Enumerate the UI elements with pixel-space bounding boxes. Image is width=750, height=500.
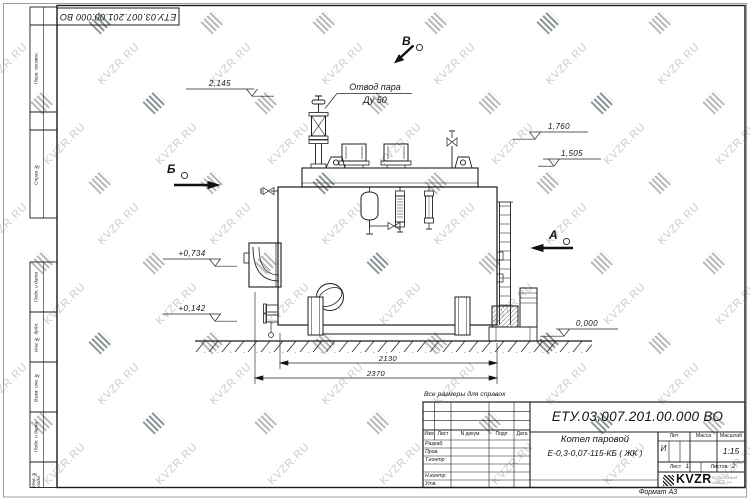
view-label-a-mark (563, 238, 570, 245)
watermark-logo-icon (648, 170, 672, 194)
watermark-text: KVZR.RU (0, 201, 30, 248)
watermark-text: KVZR.RU (432, 201, 479, 248)
dim-2130: 2130 (358, 354, 418, 363)
callout-steam-outlet: Отвод пара (338, 82, 412, 92)
watermark-text: KVZR.RU (0, 361, 30, 408)
watermark-logo-icon (424, 330, 448, 354)
watermark-text: KVZR.RU (432, 41, 479, 88)
sheets-total: 2 (732, 463, 736, 470)
frame-label-podp-data-1: Подп. и дата (31, 262, 43, 312)
kvzr-logo-icon (663, 475, 674, 486)
watermark-text: KVZR.RU (320, 361, 367, 408)
watermark-logo-icon (648, 10, 672, 34)
reference-note: Все размеры для справок (424, 391, 544, 398)
level-0000: 0,000 (556, 319, 618, 328)
watermark-logo-icon (200, 10, 224, 34)
watermark-text: KVZR.RU (154, 121, 201, 168)
watermark-text: KVZR.RU (714, 281, 750, 328)
level-1760: 1,760 (530, 122, 588, 131)
format-label: Формат А3 (618, 489, 698, 496)
top-designation: ЕТУ.03.007.201.00.000 ВО (57, 8, 179, 25)
watermark-text: KVZR.RU (42, 281, 89, 328)
product-name-line2: Е-0,3-0,07-115-КБ ( ЖК ) (532, 448, 658, 458)
watermark-logo-icon (536, 10, 560, 34)
watermark-text: KVZR.RU (208, 201, 255, 248)
frame-label-vzam-inv: Взам. инв. № (31, 362, 43, 412)
watermark-text: KVZR.RU (378, 281, 425, 328)
watermark-text: KVZR.RU (378, 441, 425, 488)
level-2145: 2,145 (186, 79, 254, 88)
watermark-text: KVZR.RU (544, 41, 591, 88)
watermark-logo-icon (702, 90, 726, 114)
watermark-logo-icon (312, 330, 336, 354)
role-utv: Утв. (425, 481, 451, 487)
watermark-text: KVZR.RU (432, 361, 479, 408)
watermark-text: KVZR.RU (378, 121, 425, 168)
frame-label-inv-podl: Инв. № подл. (31, 462, 43, 487)
watermark-logo-icon (536, 170, 560, 194)
col-ndokum: N докум (451, 431, 489, 437)
watermark-text: KVZR.RU (208, 361, 255, 408)
watermark-logo-icon (142, 410, 166, 434)
callout-du50: Ду 50 (338, 95, 412, 105)
watermark-text: KVZR.RU (0, 41, 30, 88)
view-label-b-mark (181, 172, 188, 179)
scale-label: Масштаб (717, 433, 745, 439)
product-name-line1: Котел паровой (532, 434, 658, 445)
sheets-label: Листов (711, 464, 728, 470)
watermark-logo-icon (88, 330, 112, 354)
watermark-text: KVZR.RU (656, 361, 703, 408)
col-izm: Изм (423, 431, 435, 437)
level-0142: +0,142 (163, 304, 221, 313)
watermark-logo-icon (312, 10, 336, 34)
view-label-v-mark (416, 44, 423, 51)
lit-label: Лит (658, 433, 690, 439)
watermark-text: KVZR.RU (544, 361, 591, 408)
watermark-text: KVZR.RU (714, 121, 750, 168)
sheets-cell: Листов 2 (701, 463, 745, 470)
mass-label: Масса (690, 433, 717, 439)
title-block-designation: ЕТУ.03.007.201.00.000 ВО (532, 402, 743, 432)
kvzr-logo-text: KVZR (676, 472, 712, 486)
frame-label-inv-dubl: Инв. № дубл. (31, 312, 43, 362)
watermark-logo-icon (366, 410, 390, 434)
view-label-b: Б (167, 162, 176, 176)
watermark-logo-icon (254, 250, 278, 274)
frame-label-podp-data-2: Подп. и дата (31, 412, 43, 462)
watermark-text: KVZR.RU (96, 361, 143, 408)
watermark-logo-icon (424, 170, 448, 194)
watermark-logo-icon (648, 330, 672, 354)
watermark-logo-icon (478, 250, 502, 274)
watermark-text: KVZR.RU (42, 121, 89, 168)
watermark-logo-icon (366, 250, 390, 274)
dim-2370: 2370 (346, 369, 406, 378)
role-razrab: Разраб. (425, 441, 451, 447)
watermark-text: KVZR.RU (154, 441, 201, 488)
sheet-number: 1 (685, 463, 689, 470)
frame-label-sprav-no: Справ. № (31, 130, 43, 218)
watermark-text: KVZR.RU (320, 201, 367, 248)
watermark-logo-icon (590, 90, 614, 114)
level-1505: 1,505 (543, 149, 601, 158)
view-label-a: А (549, 228, 558, 242)
watermark-text: KVZR.RU (602, 121, 649, 168)
frame-label-perv-primen: Перв. примен. (31, 25, 43, 112)
view-label-v: В (402, 34, 411, 48)
watermark-text: KVZR.RU (490, 441, 537, 488)
role-tkontr: Т.контр (425, 457, 451, 463)
watermark-logo-icon (702, 250, 726, 274)
kvzr-logo-caption: КОТЕЛЬНЫЙ ЗАВОД.РУ (712, 475, 745, 485)
watermark-text: KVZR.RU (656, 41, 703, 88)
col-data: Дата (514, 431, 530, 437)
watermark-logo-icon (88, 170, 112, 194)
drawing-sheet: KVZR.RUKVZR.RUKVZR.RUKVZR.RUKVZR.RUKVZR.… (0, 0, 750, 500)
watermark-logo-icon (254, 410, 278, 434)
col-podp: Подп (489, 431, 514, 437)
role-nkontr: Н.контр (425, 473, 451, 479)
watermark-logo-icon (254, 90, 278, 114)
watermark-logo-icon (478, 90, 502, 114)
watermark-logo-icon (200, 170, 224, 194)
watermark-logo-icon (142, 90, 166, 114)
lit-value: И (658, 444, 669, 453)
sheet-cell: Лист 1 (658, 463, 701, 470)
watermark-logo-icon (590, 250, 614, 274)
watermark-logo-icon (424, 10, 448, 34)
watermark-text: KVZR.RU (266, 281, 313, 328)
watermark-text: KVZR.RU (96, 201, 143, 248)
watermark-text: KVZR.RU (490, 281, 537, 328)
col-list: Лист (435, 431, 451, 437)
scale-value: 1:15 (717, 446, 745, 456)
watermark-text: KVZR.RU (320, 41, 367, 88)
watermark-text: KVZR.RU (656, 201, 703, 248)
watermark-text: KVZR.RU (96, 41, 143, 88)
watermark-logo-icon (536, 330, 560, 354)
watermark-text: KVZR.RU (266, 441, 313, 488)
role-prov: Пров. (425, 449, 451, 455)
watermark-logo-icon (312, 170, 336, 194)
watermark-logo-icon (200, 330, 224, 354)
watermark-text: KVZR.RU (266, 121, 313, 168)
sheet-label: Лист (670, 464, 681, 470)
level-0734: +0,734 (163, 249, 221, 258)
watermark-text: KVZR.RU (42, 441, 89, 488)
